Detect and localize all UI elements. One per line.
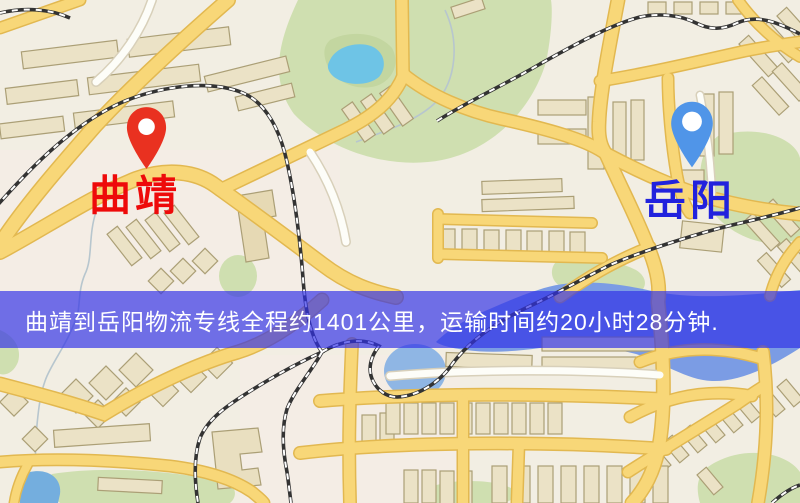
pin-hole — [682, 112, 702, 132]
destination-pin-icon[interactable] — [667, 99, 717, 169]
origin-pin-icon[interactable] — [123, 103, 170, 172]
route-info-text: 曲靖到岳阳物流专线全程约1401公里，运输时间约20小时28分钟. — [0, 303, 719, 337]
pin-body — [671, 102, 713, 168]
map-canvas[interactable]: 曲靖 岳阳 曲靖到岳阳物流专线全程约1401公里，运输时间约20小时28分钟. — [0, 0, 800, 503]
origin-label: 曲靖 — [89, 175, 181, 217]
destination-label: 岳阳 — [644, 180, 736, 222]
map-tiles — [0, 0, 800, 503]
pin-hole — [138, 118, 155, 135]
route-info-banner: 曲靖到岳阳物流专线全程约1401公里，运输时间约20小时28分钟. — [0, 291, 800, 348]
pin-body — [127, 107, 166, 169]
